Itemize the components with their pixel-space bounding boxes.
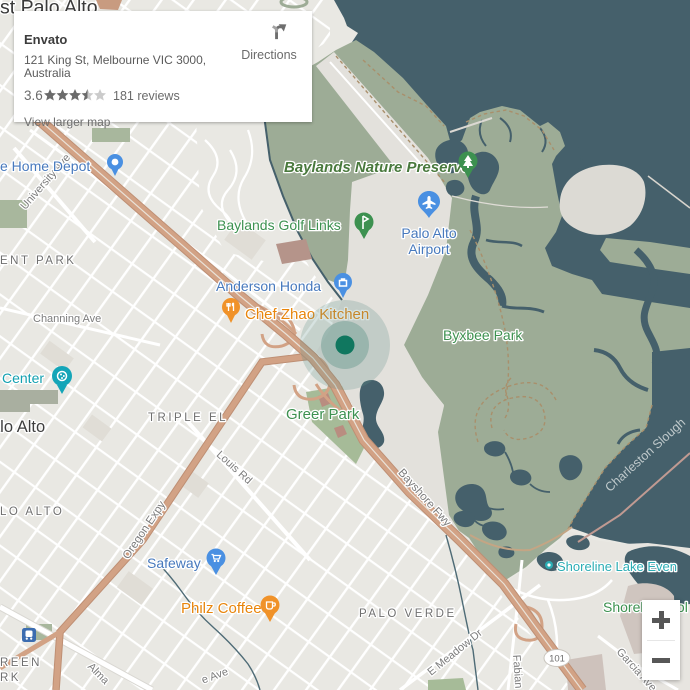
svg-text:Baylands Golf Links: Baylands Golf Links [217,217,341,233]
svg-text:Palo Alto: Palo Alto [401,225,456,241]
svg-text:TRIPLE EL: TRIPLE EL [148,412,228,424]
svg-text:101: 101 [549,654,565,665]
svg-text:Safeway: Safeway [147,555,201,571]
svg-text:LO ALTO: LO ALTO [0,506,64,518]
svg-text:Philz Coffee: Philz Coffee [181,600,262,617]
svg-text:Anderson Honda: Anderson Honda [216,278,321,294]
svg-text:Byxbee Park: Byxbee Park [443,327,523,343]
svg-text:PALO VERDE: PALO VERDE [359,608,457,620]
svg-text:Greer Park: Greer Park [286,406,360,423]
svg-text:Baylands Nature Preserve: Baylands Nature Preserve [284,159,470,176]
svg-text:e Home Depot: e Home Depot [0,158,90,174]
svg-text:Channing Ave: Channing Ave [33,313,101,325]
svg-text:Center: Center [2,370,44,386]
svg-text:RK: RK [0,672,21,684]
svg-text:REEN: REEN [0,657,42,669]
svg-text:Airport: Airport [408,241,449,257]
svg-text:ENT PARK: ENT PARK [0,255,76,267]
svg-text:Shoreline Lake Even: Shoreline Lake Even [557,559,677,574]
svg-text:alo Alto: alo Alto [0,418,45,436]
